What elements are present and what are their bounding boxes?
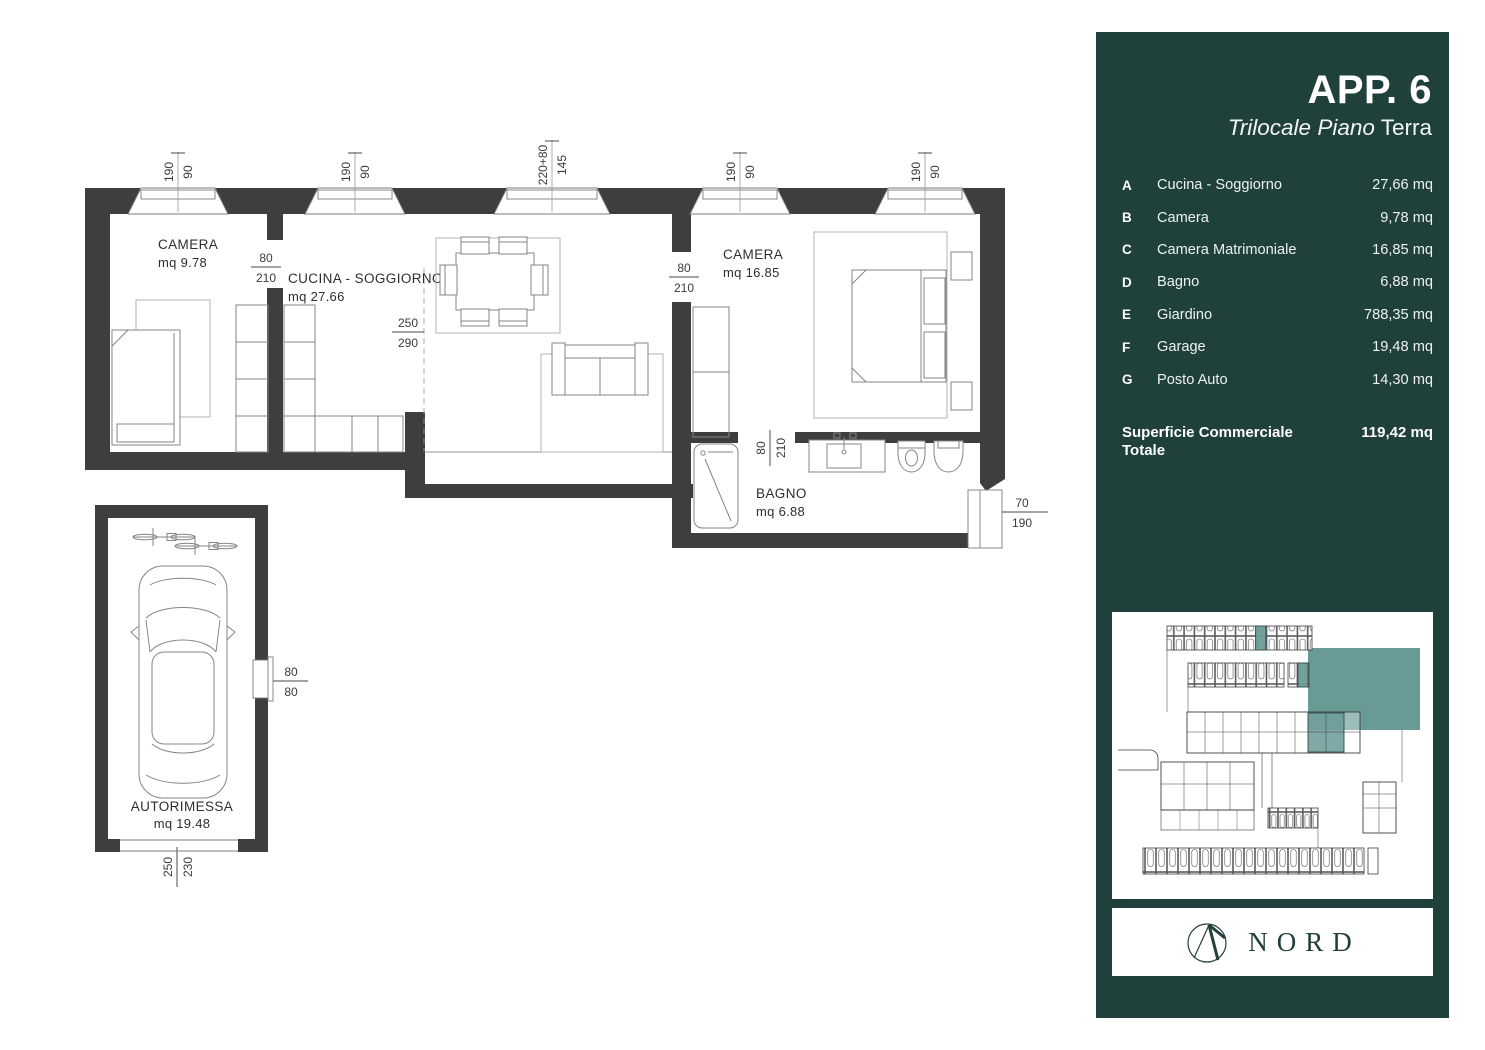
- dim-door2: 80 210: [669, 261, 699, 295]
- car-symbol: [131, 566, 235, 798]
- wardrobe-symbol: [693, 307, 729, 437]
- svg-text:190: 190: [1012, 516, 1032, 530]
- svg-text:90: 90: [181, 165, 195, 179]
- area-row: A Cucina - Soggiorno 27,66 mq: [1122, 169, 1433, 201]
- area-row: D Bagno 6,88 mq: [1122, 266, 1433, 298]
- row-label: Camera: [1157, 210, 1209, 226]
- svg-text:80: 80: [284, 665, 298, 679]
- svg-text:90: 90: [358, 165, 372, 179]
- area-row: E Giardino 788,35 mq: [1122, 299, 1433, 331]
- area-row: G Posto Auto 14,30 mq: [1122, 363, 1433, 395]
- row-value: 9,78 mq: [1380, 210, 1433, 226]
- svg-text:210: 210: [256, 271, 276, 285]
- row-key: D: [1122, 275, 1157, 290]
- kitchen-units-symbol: [284, 305, 403, 452]
- bagno-fixtures: [694, 433, 963, 528]
- area-row: B Camera 9,78 mq: [1122, 201, 1433, 233]
- window-icon: [253, 657, 273, 701]
- row-label: Giardino: [1157, 307, 1212, 323]
- row-value: 19,48 mq: [1372, 339, 1433, 355]
- dim-door3: 80 210: [754, 430, 788, 466]
- room-garage-name: AUTORIMESSA: [131, 799, 233, 814]
- room-camera2-area: mq 16.85: [723, 265, 780, 280]
- camera2-furniture: [693, 232, 972, 437]
- site-plan-minimap: [1112, 612, 1433, 899]
- svg-text:90: 90: [928, 165, 942, 179]
- subtitle-italic: Trilocale Piano: [1228, 115, 1375, 140]
- parking-row: [1268, 808, 1318, 828]
- row-value: 6,88 mq: [1380, 274, 1433, 290]
- room-camera1-name: CAMERA: [158, 237, 218, 252]
- svg-text:190: 190: [724, 162, 738, 182]
- svg-text:80: 80: [284, 685, 298, 699]
- svg-text:70: 70: [1015, 496, 1029, 510]
- apartment-title: APP. 6: [1307, 70, 1432, 110]
- wardrobe-symbol: [236, 305, 268, 452]
- svg-text:210: 210: [774, 438, 788, 458]
- area-row: C Camera Matrimoniale 16,85 mq: [1122, 234, 1433, 266]
- room-camera1-area: mq 9.78: [158, 255, 207, 270]
- total-area: Superficie Commerciale Totale 119,42 mq: [1122, 424, 1433, 459]
- apartment-subtitle: Trilocale Piano Terra: [1228, 116, 1432, 141]
- svg-text:290: 290: [398, 336, 418, 350]
- row-label: Cucina - Soggiorno: [1157, 177, 1282, 193]
- row-label: Posto Auto: [1157, 372, 1228, 388]
- row-key: E: [1122, 307, 1157, 322]
- dim-bath-window: 70 190: [1002, 496, 1048, 530]
- double-bed-symbol: [852, 252, 972, 410]
- bicycles-symbol: [133, 528, 237, 555]
- garage-highlight: [1256, 626, 1266, 650]
- total-value: 119,42 mq: [1361, 424, 1433, 442]
- row-key: A: [1122, 178, 1157, 193]
- subtitle-regular: Terra: [1381, 115, 1432, 140]
- svg-text:80: 80: [677, 261, 691, 275]
- single-bed-symbol: [112, 330, 180, 445]
- svg-text:190: 190: [339, 162, 353, 182]
- brand-footer: NORD: [1112, 908, 1433, 976]
- compass-peak-icon: [1184, 918, 1232, 966]
- parking-row: [1167, 626, 1312, 650]
- floor-plan: 190 90 190 90 220+80 145 190 90: [0, 0, 1080, 1050]
- room-bagno-area: mq 6.88: [756, 504, 805, 519]
- room-cucina-area: mq 27.66: [288, 289, 345, 304]
- camera1-furniture: [112, 300, 268, 452]
- cucina-furniture: [284, 237, 663, 452]
- svg-text:190: 190: [162, 162, 176, 182]
- brochure-page: 190 90 190 90 220+80 145 190 90: [0, 0, 1485, 1050]
- dim-garage-door: 250 230: [161, 847, 195, 887]
- room-garage-area: mq 19.48: [154, 816, 211, 831]
- svg-text:230: 230: [181, 857, 195, 877]
- svg-text:145: 145: [555, 155, 569, 175]
- row-value: 788,35 mq: [1364, 307, 1433, 323]
- sofa-symbol: [541, 343, 663, 452]
- parking-row: [1143, 848, 1364, 874]
- svg-text:250: 250: [161, 857, 175, 877]
- row-value: 27,66 mq: [1372, 177, 1433, 193]
- row-value: 16,85 mq: [1372, 242, 1433, 258]
- parking-row: [1188, 663, 1284, 687]
- area-row: F Garage 19,48 mq: [1122, 331, 1433, 363]
- site-plan-svg: [1112, 612, 1433, 899]
- svg-text:190: 190: [909, 162, 923, 182]
- posto-auto-highlight: [1298, 663, 1308, 687]
- row-label: Garage: [1157, 339, 1206, 355]
- svg-text:80: 80: [754, 441, 768, 455]
- room-bagno-name: BAGNO: [756, 486, 807, 501]
- row-key: G: [1122, 372, 1157, 387]
- dining-table-symbol: [436, 237, 560, 333]
- room-cucina-name: CUCINA - SOGGIORNO: [288, 271, 443, 286]
- room-camera2-name: CAMERA: [723, 247, 783, 262]
- row-key: B: [1122, 210, 1157, 225]
- bidet-symbol: [898, 441, 925, 472]
- svg-text:250: 250: [398, 316, 418, 330]
- dim-garage-window: 80 80: [268, 665, 308, 699]
- toilet-symbol: [934, 441, 963, 472]
- row-key: C: [1122, 242, 1157, 257]
- row-label: Camera Matrimoniale: [1157, 242, 1297, 258]
- window-icon: [968, 490, 1002, 548]
- svg-text:220+80: 220+80: [536, 144, 550, 185]
- svg-text:80: 80: [259, 251, 273, 265]
- svg-text:210: 210: [674, 281, 694, 295]
- row-value: 14,30 mq: [1372, 372, 1433, 388]
- brand-name: NORD: [1248, 927, 1361, 958]
- svg-text:90: 90: [743, 165, 757, 179]
- row-label: Bagno: [1157, 274, 1199, 290]
- total-label: Superficie Commerciale Totale: [1122, 424, 1312, 459]
- area-list: A Cucina - Soggiorno 27,66 mq B Camera 9…: [1122, 169, 1433, 396]
- shower-symbol: [694, 444, 738, 528]
- info-panel: APP. 6 Trilocale Piano Terra A Cucina - …: [1096, 32, 1449, 1018]
- dim-door1: 80 210: [251, 251, 281, 285]
- row-key: F: [1122, 340, 1157, 355]
